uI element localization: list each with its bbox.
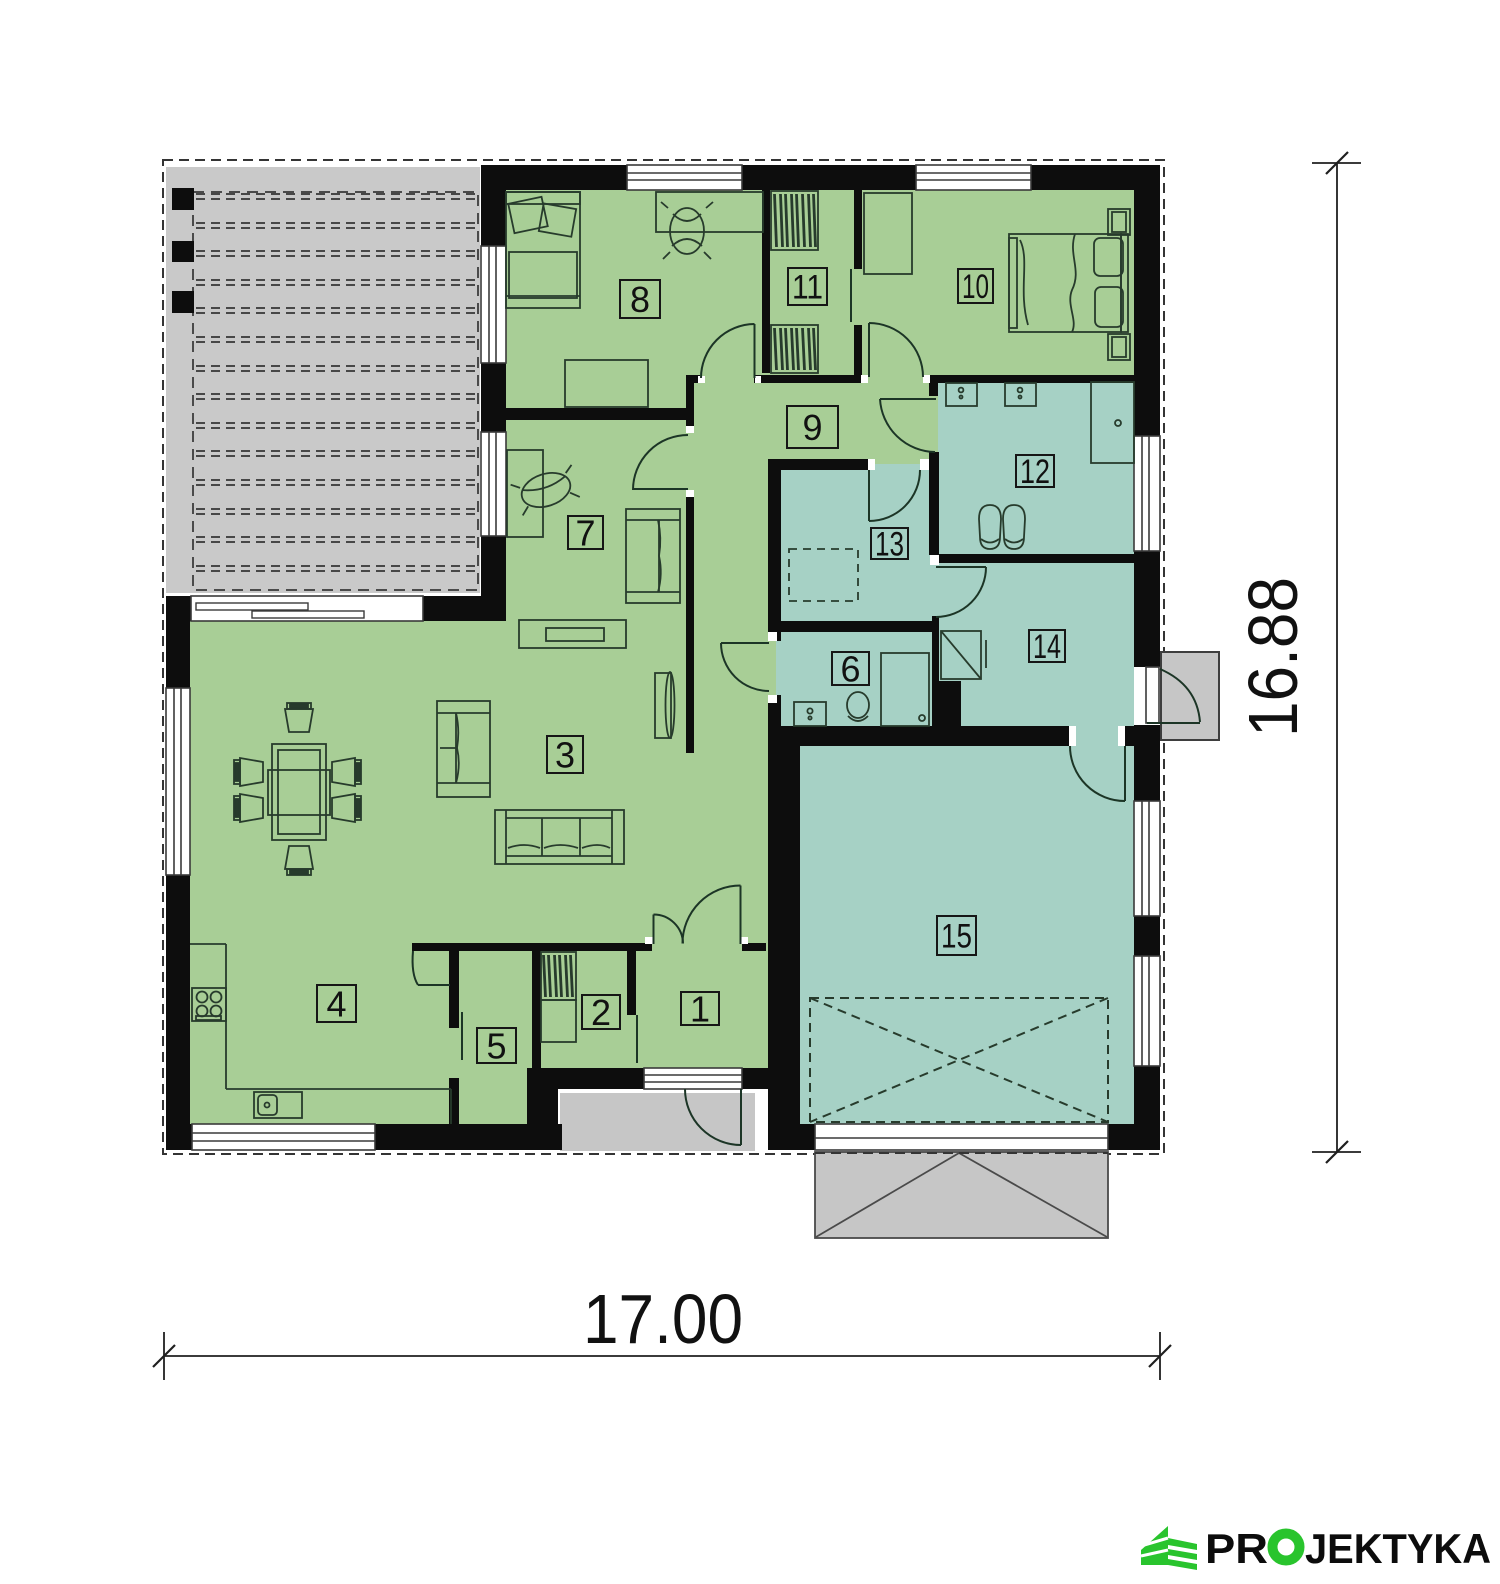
svg-text:5: 5 — [486, 1025, 506, 1066]
svg-text:4: 4 — [326, 983, 346, 1024]
svg-text:13: 13 — [875, 526, 904, 564]
svg-text:1: 1 — [690, 988, 710, 1029]
svg-text:6: 6 — [840, 648, 860, 689]
svg-text:16.88: 16.88 — [1234, 577, 1312, 737]
svg-text:15: 15 — [941, 918, 972, 956]
svg-text:JEKTYKA: JEKTYKA — [1305, 1525, 1491, 1572]
svg-text:PR: PR — [1205, 1525, 1268, 1572]
svg-text:2: 2 — [591, 992, 611, 1033]
svg-text:17.00: 17.00 — [583, 1280, 743, 1358]
svg-text:10: 10 — [962, 268, 989, 306]
svg-text:11: 11 — [792, 269, 823, 307]
svg-text:14: 14 — [1033, 628, 1061, 666]
svg-text:9: 9 — [802, 407, 822, 448]
svg-text:8: 8 — [630, 279, 650, 320]
svg-text:7: 7 — [575, 512, 595, 553]
svg-text:12: 12 — [1020, 453, 1050, 491]
svg-text:3: 3 — [555, 734, 575, 775]
